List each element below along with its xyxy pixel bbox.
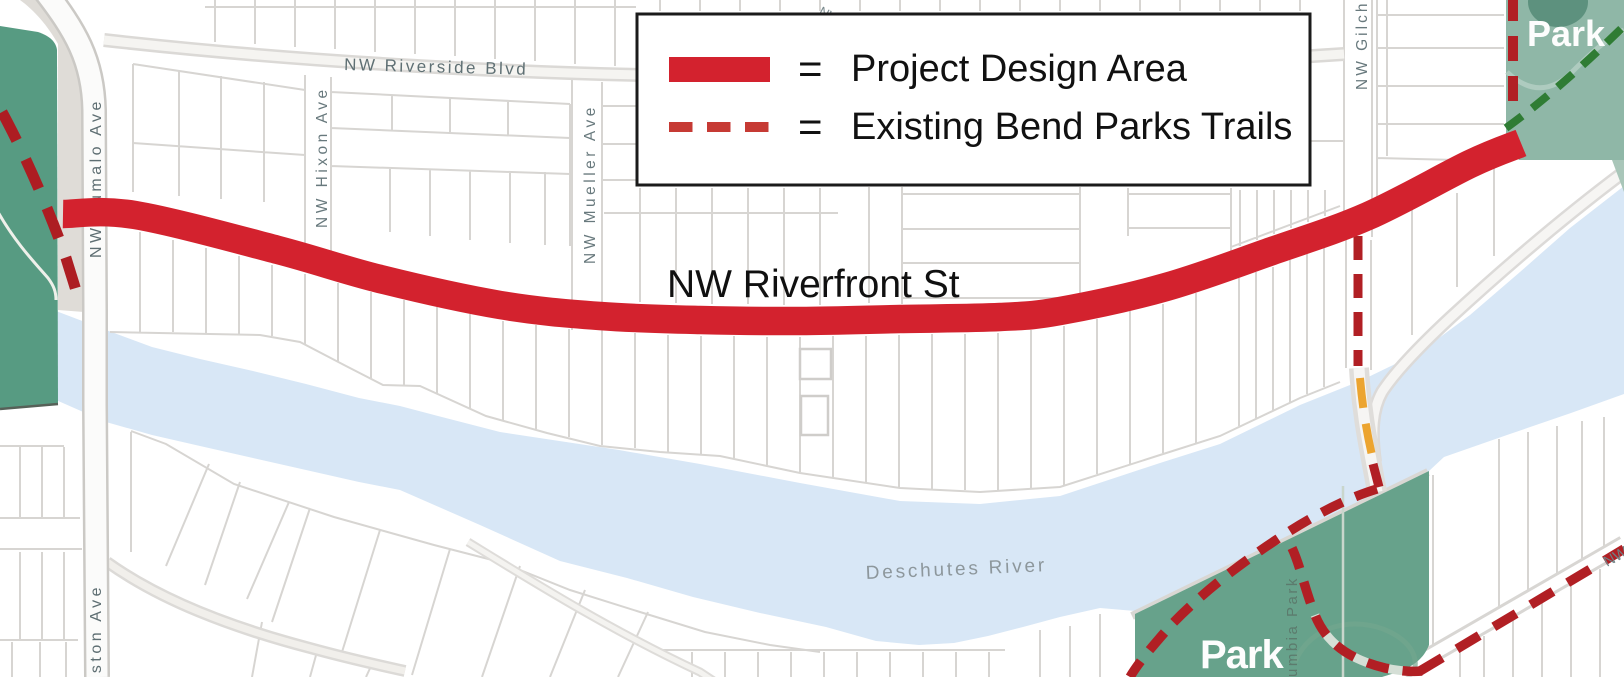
svg-text:NW Gilchrist: NW Gilchrist: [1354, 0, 1371, 90]
svg-text:Existing Bend Parks Trails: Existing Bend Parks Trails: [851, 106, 1292, 148]
svg-text:Park: Park: [1527, 13, 1606, 54]
svg-text:NW Galveston Ave: NW Galveston Ave: [88, 584, 105, 677]
svg-text:NW Hixon Ave: NW Hixon Ave: [314, 86, 331, 228]
svg-text:Project Design Area: Project Design Area: [851, 48, 1188, 90]
svg-text:=: =: [798, 45, 823, 92]
svg-text:=: =: [798, 103, 823, 150]
svg-text:NW Riverfront St: NW Riverfront St: [667, 263, 960, 306]
svg-text:Park: Park: [1200, 633, 1284, 677]
svg-text:NW Tumalo Ave: NW Tumalo Ave: [88, 98, 105, 258]
svg-text:NW Mueller Ave: NW Mueller Ave: [582, 104, 599, 264]
svg-text:Columbia Park: Columbia Park: [1284, 576, 1301, 677]
